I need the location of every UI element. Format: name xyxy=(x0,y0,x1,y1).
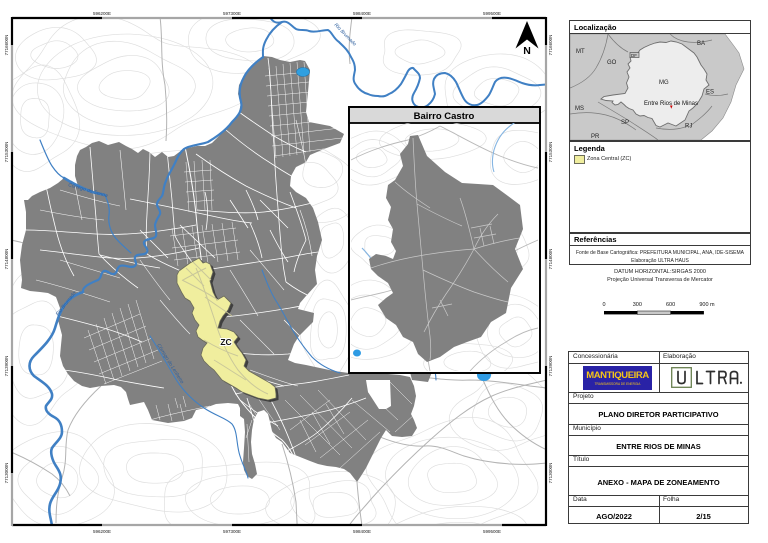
svg-text:7713000N: 7713000N xyxy=(548,463,553,484)
svg-text:598400E: 598400E xyxy=(353,529,371,534)
svg-text:MG: MG xyxy=(659,80,669,86)
svg-text:596200E: 596200E xyxy=(93,11,111,16)
svg-text:900 m: 900 m xyxy=(699,302,715,308)
svg-text:599500E: 599500E xyxy=(483,11,501,16)
svg-text:N: N xyxy=(523,45,531,57)
svg-text:Bairro Castro: Bairro Castro xyxy=(414,111,475,122)
svg-text:MS: MS xyxy=(575,106,584,112)
svg-text:BA: BA xyxy=(697,41,705,47)
svg-text:7713900N: 7713900N xyxy=(4,356,9,377)
svg-text:PR: PR xyxy=(591,134,600,140)
svg-text:597300E: 597300E xyxy=(223,529,241,534)
svg-text:7714800N: 7714800N xyxy=(4,249,9,270)
svg-text:MT: MT xyxy=(576,49,585,55)
svg-text:7715300N: 7715300N xyxy=(4,142,9,163)
svg-text:7716600N: 7716600N xyxy=(4,35,9,56)
svg-text:7713900N: 7713900N xyxy=(548,356,553,377)
svg-text:7714800N: 7714800N xyxy=(548,249,553,270)
svg-text:RJ: RJ xyxy=(685,124,692,130)
svg-text:DF: DF xyxy=(631,53,637,58)
svg-text:0: 0 xyxy=(602,302,605,308)
svg-text:GO: GO xyxy=(607,60,617,66)
svg-text:SP: SP xyxy=(621,120,629,126)
svg-text:599500E: 599500E xyxy=(483,529,501,534)
svg-text:597300E: 597300E xyxy=(223,11,241,16)
svg-text:ES: ES xyxy=(706,90,714,96)
svg-text:ZC: ZC xyxy=(220,337,231,347)
svg-text:300: 300 xyxy=(633,302,642,308)
svg-text:596200E: 596200E xyxy=(93,529,111,534)
svg-text:598400E: 598400E xyxy=(353,11,371,16)
svg-text:7713000N: 7713000N xyxy=(4,463,9,484)
svg-text:7716600N: 7716600N xyxy=(548,35,553,56)
svg-text:7715300N: 7715300N xyxy=(548,142,553,163)
svg-text:600: 600 xyxy=(666,302,675,308)
